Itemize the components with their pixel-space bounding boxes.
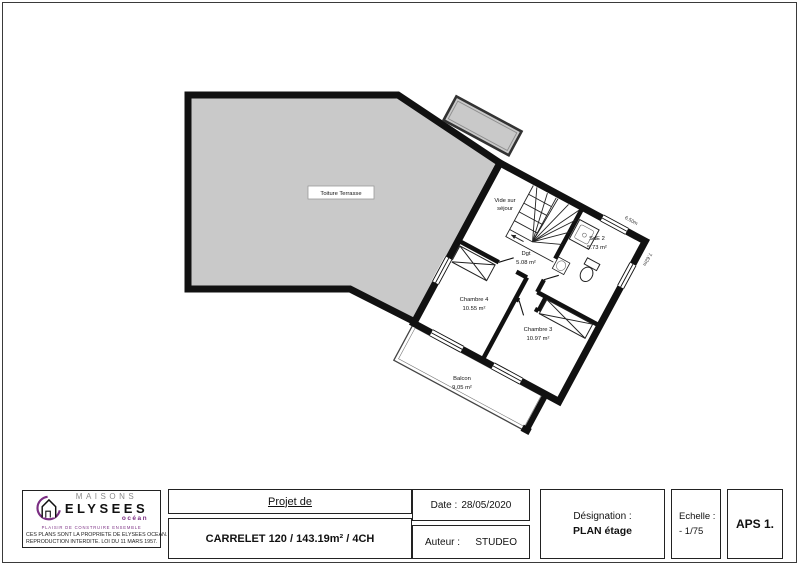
fineprint-line1: CES PLANS SONT LA PROPRIETE DE ELYSEES O…	[26, 532, 157, 539]
project-label: Projet de	[268, 496, 312, 508]
scale-label: Echelle :	[679, 511, 715, 522]
brand-main: ELYSEES	[65, 502, 148, 515]
scale-value: - 1/75	[679, 526, 703, 537]
label-dgt-area: 5.08 m²	[516, 260, 536, 266]
label-balcon-area: 9.05 m²	[452, 385, 472, 391]
label-chambre3-area: 10.97 m²	[527, 336, 550, 342]
project-name-box: CARRELET 120 / 143.19m² / 4CH	[168, 518, 412, 559]
scale-box: Echelle : - 1/75	[671, 489, 721, 559]
label-chambre4-name: Chambre 4	[460, 297, 489, 303]
logo-box: MAISONS ELYSEES océan PLAISIR DE CONSTRU…	[22, 490, 161, 548]
label-dgt-name: Dgt	[521, 251, 530, 257]
doc-ref-box: APS 1.	[727, 489, 783, 559]
project-name: CARRELET 120 / 143.19m² / 4CH	[206, 533, 375, 545]
fineprint-line2: REPRODUCTION INTERDITE. LOI DU 11 MARS 1…	[26, 539, 157, 546]
date-label: Date :	[431, 500, 458, 511]
designation-label: Désignation :	[573, 511, 631, 522]
author-value: STUDEO	[475, 537, 517, 548]
dim-se-wall: 7.62m	[641, 252, 653, 267]
dim-ne-wall: 6.50m	[624, 215, 639, 227]
brand-sub: océan	[65, 516, 148, 523]
label-chambre3-name: Chambre 3	[524, 327, 553, 333]
doc-ref: APS 1.	[736, 517, 774, 531]
brand-top: MAISONS	[65, 493, 148, 501]
label-chambre4-area: 10.55 m²	[463, 306, 486, 312]
svg-text:Toiture Terrasse: Toiture Terrasse	[320, 191, 361, 197]
brand-slogan: PLAISIR DE CONSTRUIRE ENSEMBLE	[26, 525, 157, 530]
author-box: Auteur : STUDEO	[412, 525, 530, 559]
label-balcon-name: Balcon	[453, 376, 471, 382]
date-box: Date : 28/05/2020	[412, 489, 530, 521]
label-vide-1: Vide sur	[494, 198, 515, 204]
floor-plan-svg: 6.50m 7.62m Toiture Terrasse Vide sur sé…	[0, 0, 800, 485]
label-sde2-area: 5.73 m²	[587, 245, 607, 251]
designation-box: Désignation : PLAN étage	[540, 489, 665, 559]
label-vide-2: séjour	[497, 206, 513, 212]
author-label: Auteur :	[425, 537, 460, 548]
house-logo-icon	[35, 495, 62, 522]
date-value: 28/05/2020	[461, 500, 511, 511]
terrace-label: Toiture Terrasse	[308, 186, 374, 199]
project-label-box: Projet de	[168, 489, 412, 514]
label-sde2-name: SdE 2	[589, 236, 605, 242]
designation-value: PLAN étage	[573, 525, 632, 537]
plan-sheet: 6.50m 7.62m Toiture Terrasse Vide sur sé…	[0, 0, 800, 566]
